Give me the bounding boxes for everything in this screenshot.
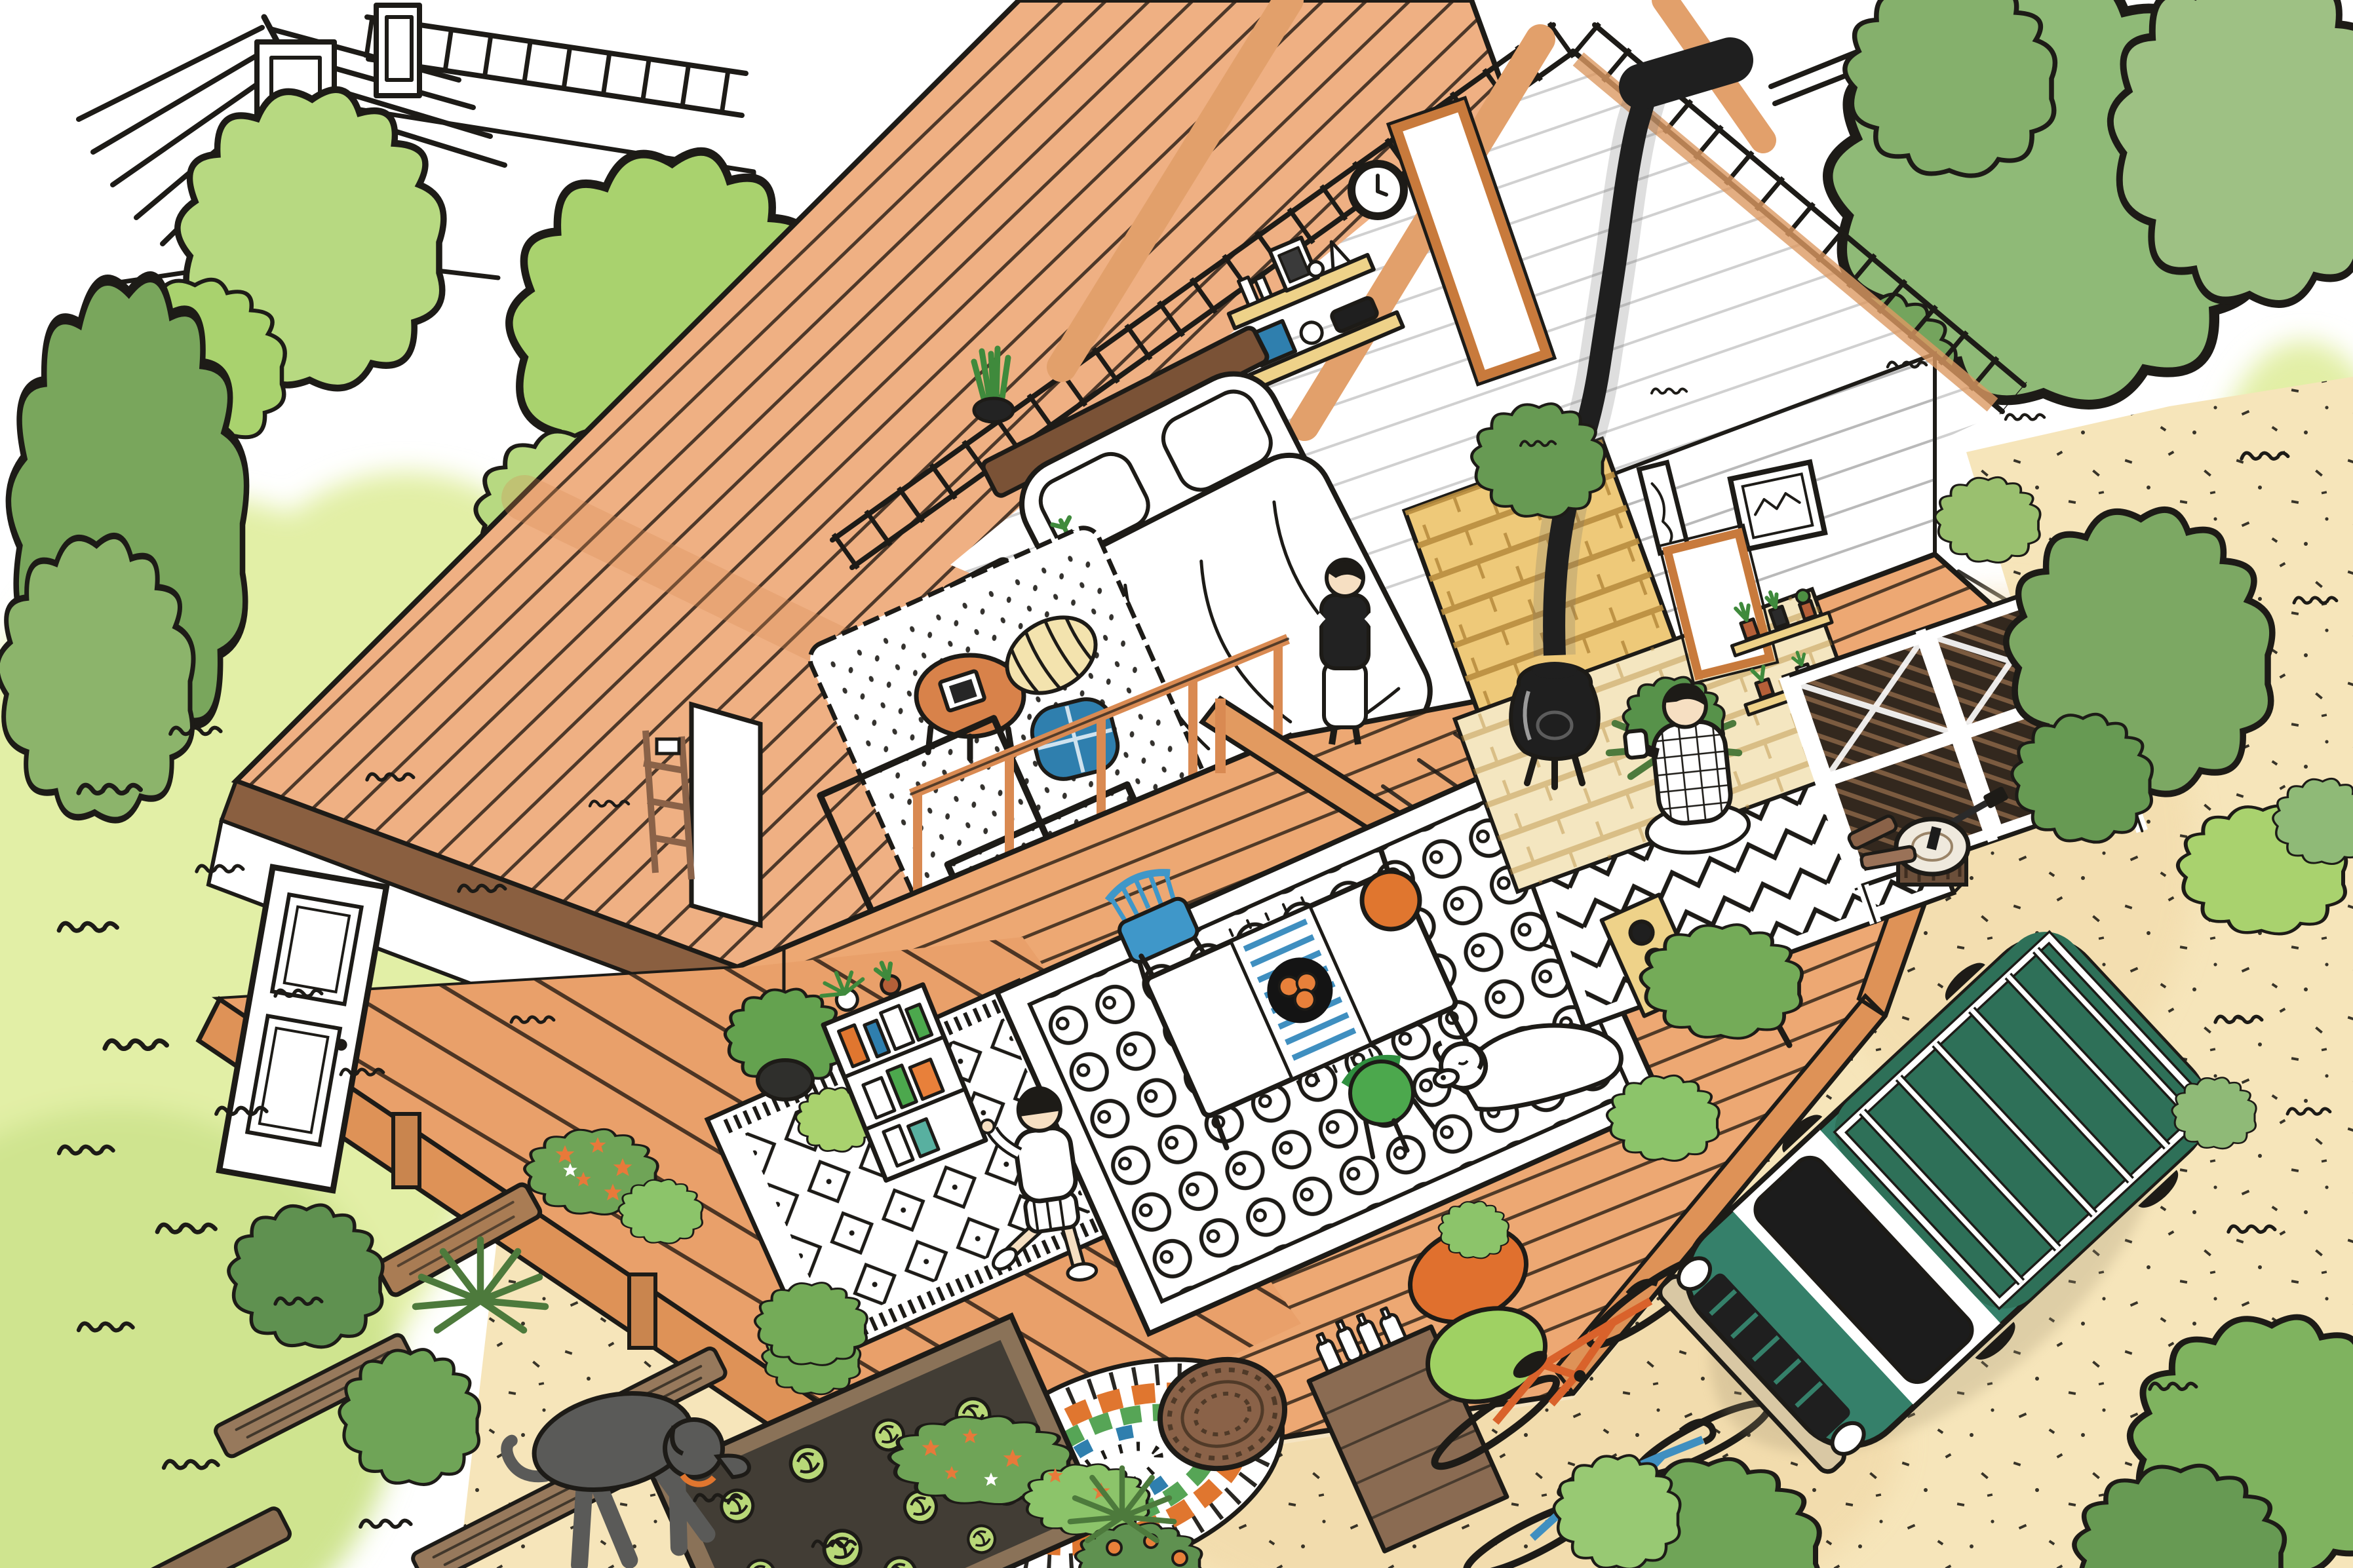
hoodie [1013, 1126, 1078, 1204]
vest [1321, 595, 1369, 668]
orange-stool [1362, 871, 1420, 929]
plaid-shirt [1651, 719, 1733, 826]
pants [1324, 662, 1366, 727]
mug [1624, 730, 1648, 758]
illustration-stage [0, 0, 2353, 1568]
cutaway-house-illustration [0, 0, 2353, 1568]
wall-clock [1352, 164, 1404, 216]
